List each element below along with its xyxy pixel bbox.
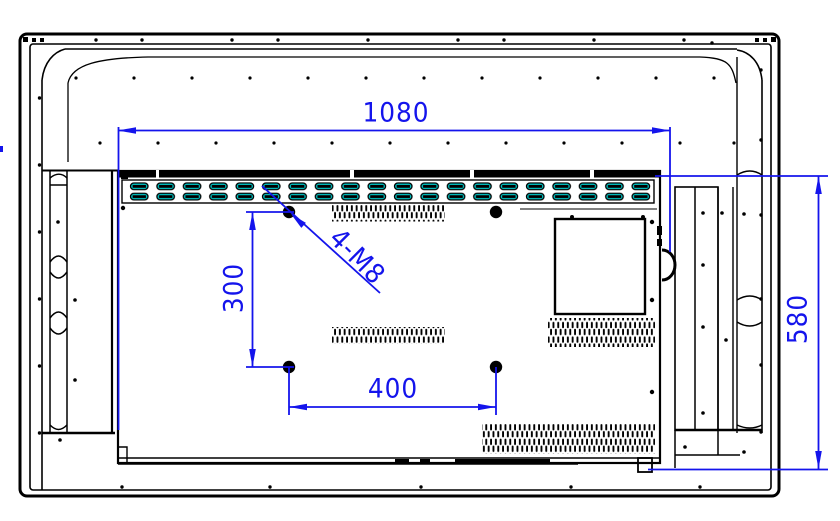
- vent-hatches: [332, 205, 655, 454]
- dimension-300: [246, 212, 294, 367]
- mount-plate: [118, 170, 660, 464]
- dim-label-vesa-vertical: 300: [221, 263, 248, 313]
- plate-screw-dots: [121, 206, 654, 394]
- electronics-box: [555, 219, 645, 314]
- left-side-trim: [42, 170, 118, 442]
- drawing-linework: [0, 0, 840, 521]
- dim-label-vesa-horizontal: 400: [368, 376, 418, 403]
- right-side-trim: [638, 57, 762, 472]
- rear-view-technical-drawing: 1080 580 300 400 4-M8: [0, 0, 840, 521]
- corner-screws: [23, 37, 776, 42]
- dim-label-overall-height: 580: [785, 294, 812, 344]
- vesa-holes: [283, 206, 502, 373]
- cable-hook: [662, 250, 675, 280]
- clipped-dimension-fragment: [0, 146, 3, 152]
- dim-label-overall-width: 1080: [363, 100, 430, 127]
